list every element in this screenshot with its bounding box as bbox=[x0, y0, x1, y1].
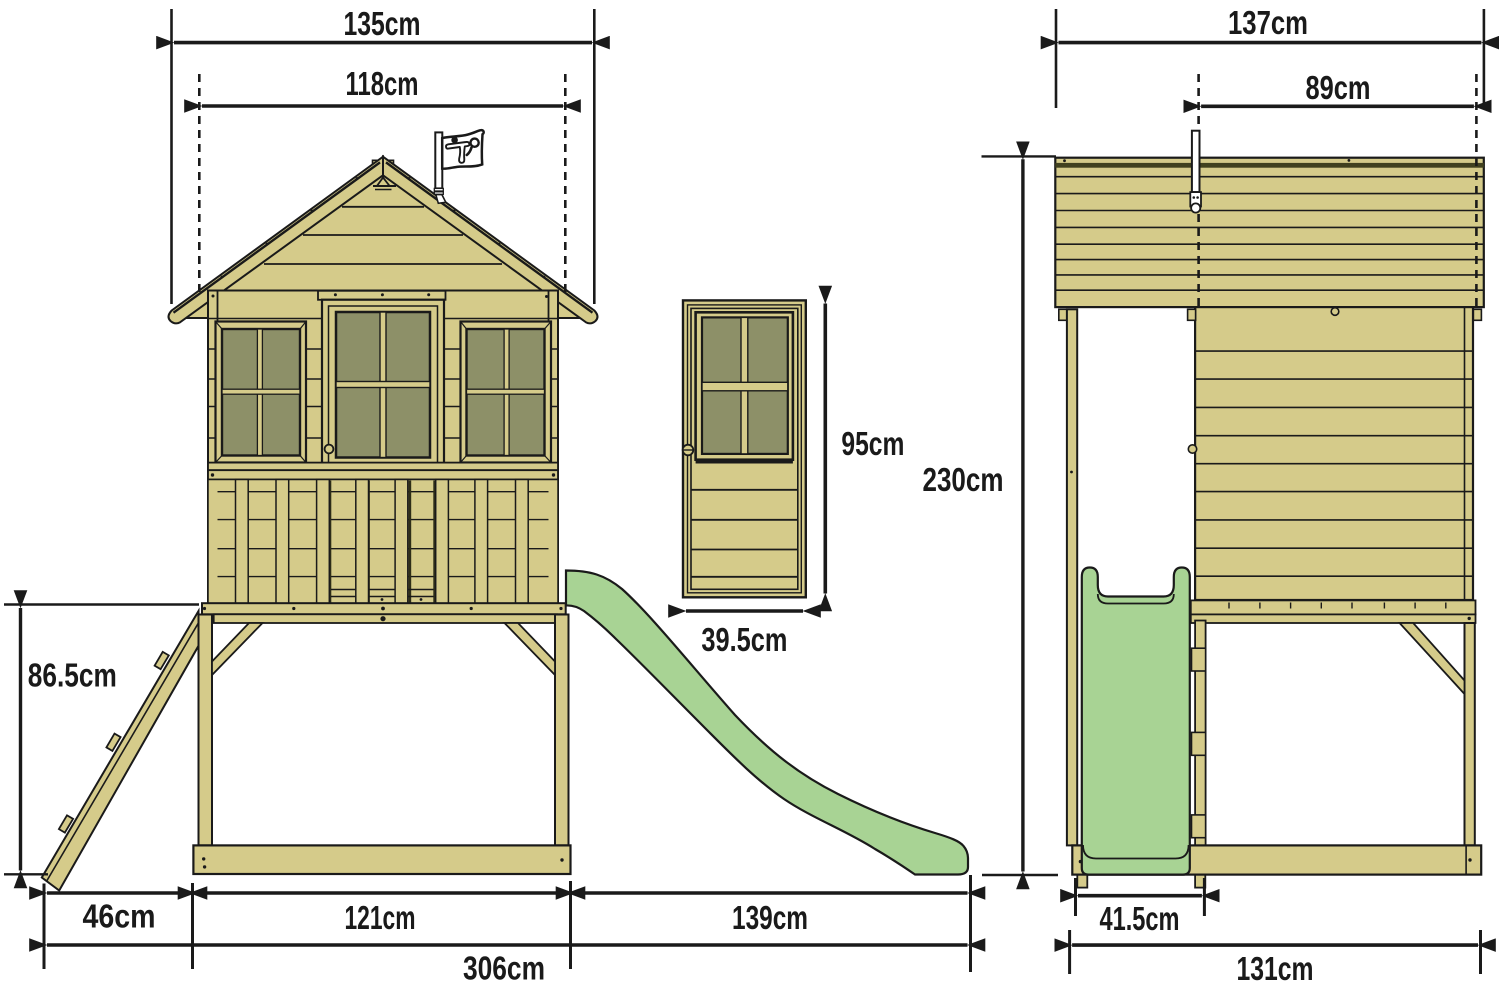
svg-text:39.5cm: 39.5cm bbox=[701, 621, 787, 658]
svg-text:306cm: 306cm bbox=[463, 950, 545, 987]
svg-text:41.5cm: 41.5cm bbox=[1100, 900, 1180, 937]
svg-text:46cm: 46cm bbox=[83, 898, 156, 935]
svg-text:89cm: 89cm bbox=[1306, 69, 1371, 106]
svg-text:137cm: 137cm bbox=[1228, 4, 1308, 41]
svg-text:86.5cm: 86.5cm bbox=[28, 656, 117, 693]
svg-text:131cm: 131cm bbox=[1237, 950, 1314, 987]
svg-text:135cm: 135cm bbox=[344, 5, 421, 42]
svg-text:118cm: 118cm bbox=[346, 65, 419, 102]
svg-text:95cm: 95cm bbox=[841, 425, 904, 462]
svg-text:230cm: 230cm bbox=[923, 461, 1004, 498]
svg-text:121cm: 121cm bbox=[345, 899, 416, 936]
svg-text:139cm: 139cm bbox=[732, 899, 808, 936]
